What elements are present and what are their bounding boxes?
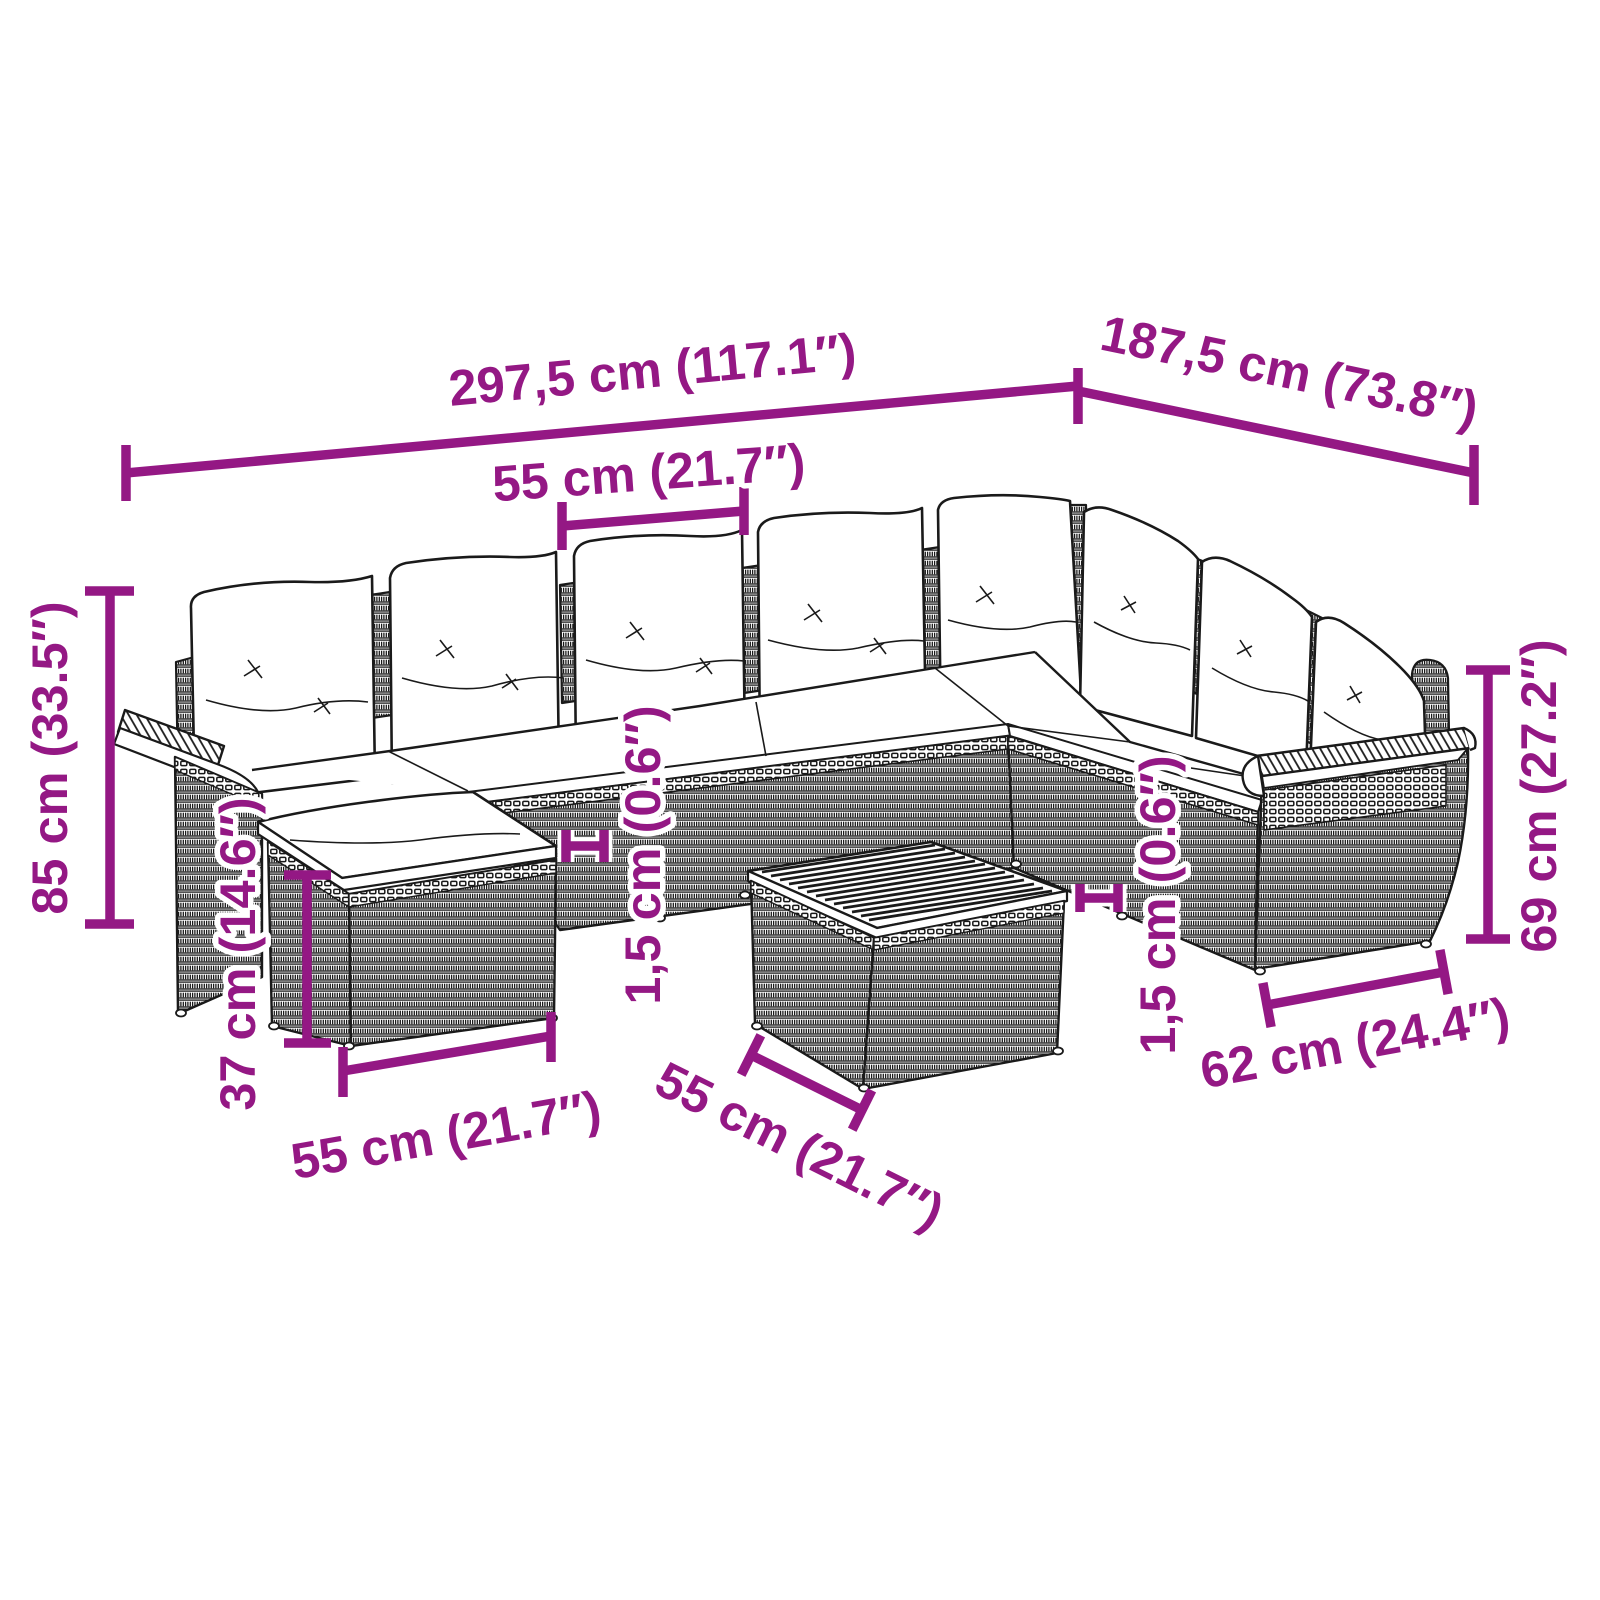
svg-text:85 cm (33.5″): 85 cm (33.5″)	[21, 601, 78, 914]
svg-text:69 cm (27.2″): 69 cm (27.2″)	[1510, 639, 1567, 952]
svg-text:37 cm (14.6″): 37 cm (14.6″)	[209, 797, 266, 1110]
svg-text:1,5 cm (0.6″): 1,5 cm (0.6″)	[1129, 755, 1186, 1054]
svg-text:1,5 cm (0.6″): 1,5 cm (0.6″)	[614, 705, 671, 1004]
